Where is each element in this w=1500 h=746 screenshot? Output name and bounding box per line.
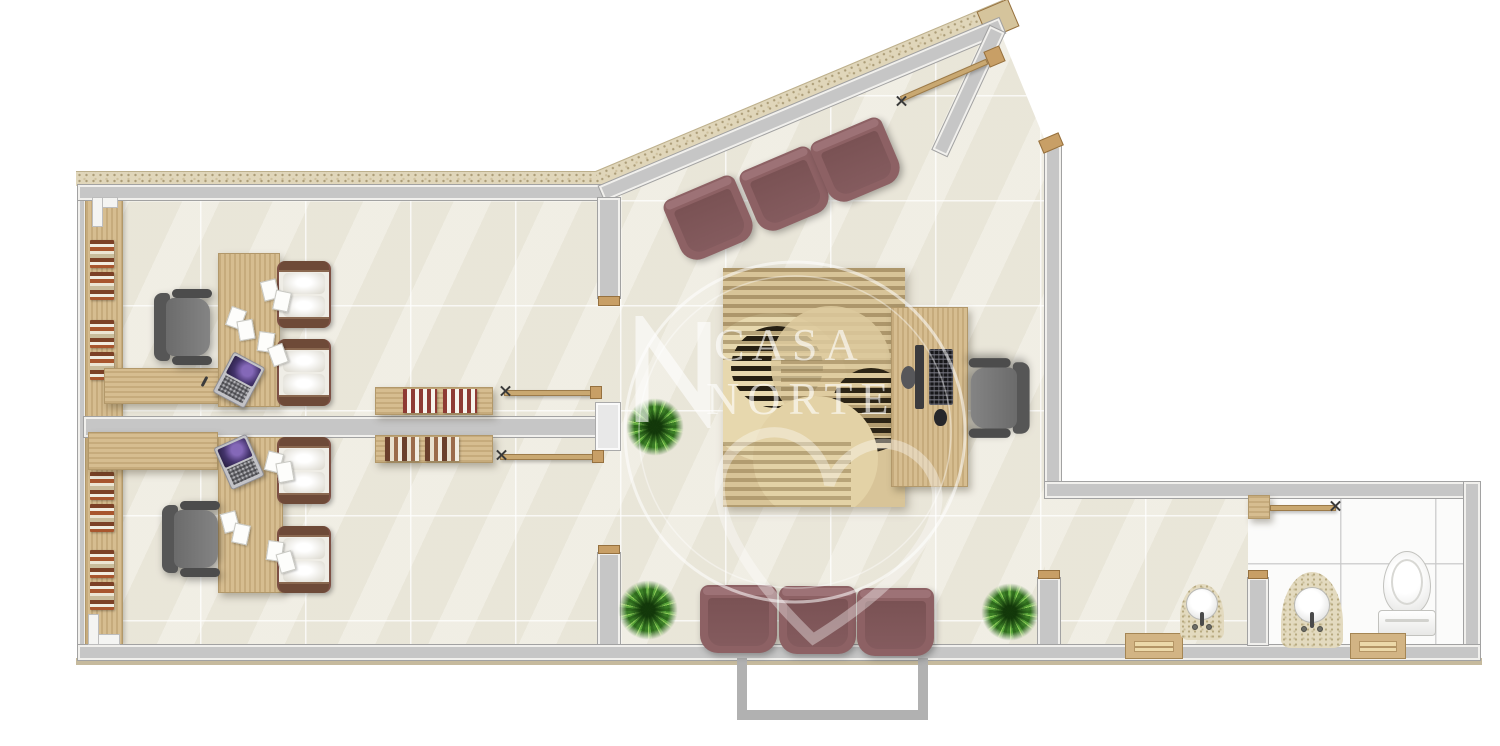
wall-top (78, 185, 612, 200)
desk-return-bottom-room (88, 432, 218, 470)
faucet-handle (1192, 624, 1198, 630)
paper-sheet (275, 461, 294, 483)
potted-plant (626, 398, 684, 456)
shelf-books (385, 437, 419, 461)
pillar-bottom-left-alcove (598, 553, 620, 647)
wall-stub-top-room (598, 198, 620, 298)
monitor-stand (901, 366, 916, 389)
hanging-rail-bathroom (1270, 505, 1336, 511)
chair-seat (971, 368, 1017, 429)
shelf-books (443, 389, 477, 413)
floor-plan: CASA NORTE (0, 0, 1500, 746)
corner-column-top-left-b (92, 197, 103, 227)
chair-seat (166, 298, 210, 356)
waiting-armchair (779, 586, 856, 654)
chair-armrest (969, 428, 1011, 437)
wall-right-vertical (1045, 146, 1061, 498)
potted-plant (618, 580, 678, 640)
chair-armrest (172, 289, 212, 298)
shelf-books (403, 389, 437, 413)
faucet (1200, 612, 1204, 626)
chair-armrest (180, 568, 220, 577)
entrance-porch-outline (737, 658, 928, 720)
rail-end-block (590, 386, 602, 399)
rail-hook (1330, 500, 1341, 511)
office-chair-bottom-room (162, 501, 226, 577)
faucet-handle (1301, 626, 1307, 632)
chair-armrest (172, 356, 212, 365)
shelf-books (425, 437, 459, 461)
corner-column-bottom-left-b (88, 614, 99, 645)
chair-armrest (180, 501, 220, 510)
book-stack (90, 550, 114, 578)
stub-bottom-right-alcove (1038, 578, 1060, 647)
pillar-bottom-left-cap (598, 545, 620, 554)
wall-wing-right (1464, 482, 1480, 660)
book-stack (90, 240, 114, 268)
chair-armrest (969, 358, 1011, 367)
mouse (934, 409, 947, 426)
area-rug (723, 268, 905, 507)
potted-plant (981, 583, 1039, 641)
bathroom-partition (1248, 578, 1268, 645)
waiting-armchair (857, 588, 934, 656)
keyboard (929, 349, 953, 405)
faucet-handle (1206, 624, 1212, 630)
stub-bottom-right-cap (1038, 570, 1060, 579)
rail-hook (496, 449, 507, 460)
rail-end-block (592, 450, 604, 463)
bathroom-door-shelf (1248, 495, 1270, 519)
vanity-cabinet (1350, 633, 1406, 659)
book-stack (90, 504, 114, 532)
toilet-bowl (1383, 551, 1431, 615)
rail-hook (500, 385, 511, 396)
hanging-rail-top-room (504, 390, 596, 396)
monitor (915, 345, 924, 409)
book-stack (90, 320, 114, 348)
chair-seat (174, 510, 218, 568)
hanging-rail-bottom-room (500, 454, 596, 460)
faucet (1310, 612, 1314, 628)
office-chair-top-room (154, 289, 218, 365)
middle-wall-end-pillar (596, 403, 620, 450)
paper-sheet (236, 319, 255, 341)
book-stack (90, 582, 114, 610)
vanity-cabinet (1125, 633, 1183, 659)
wall-stub-top-cap (598, 296, 620, 306)
exterior-stone-band-top (76, 171, 612, 186)
bathroom-partition-cap (1248, 570, 1268, 579)
rug-pattern-stripes (723, 442, 851, 507)
faucet-handle (1317, 626, 1323, 632)
book-stack (90, 472, 114, 500)
recliner-chair (277, 339, 331, 406)
waiting-armchair (700, 585, 777, 653)
office-chair-executive (962, 358, 1029, 438)
rail-hook (896, 95, 907, 106)
book-stack (90, 272, 114, 300)
